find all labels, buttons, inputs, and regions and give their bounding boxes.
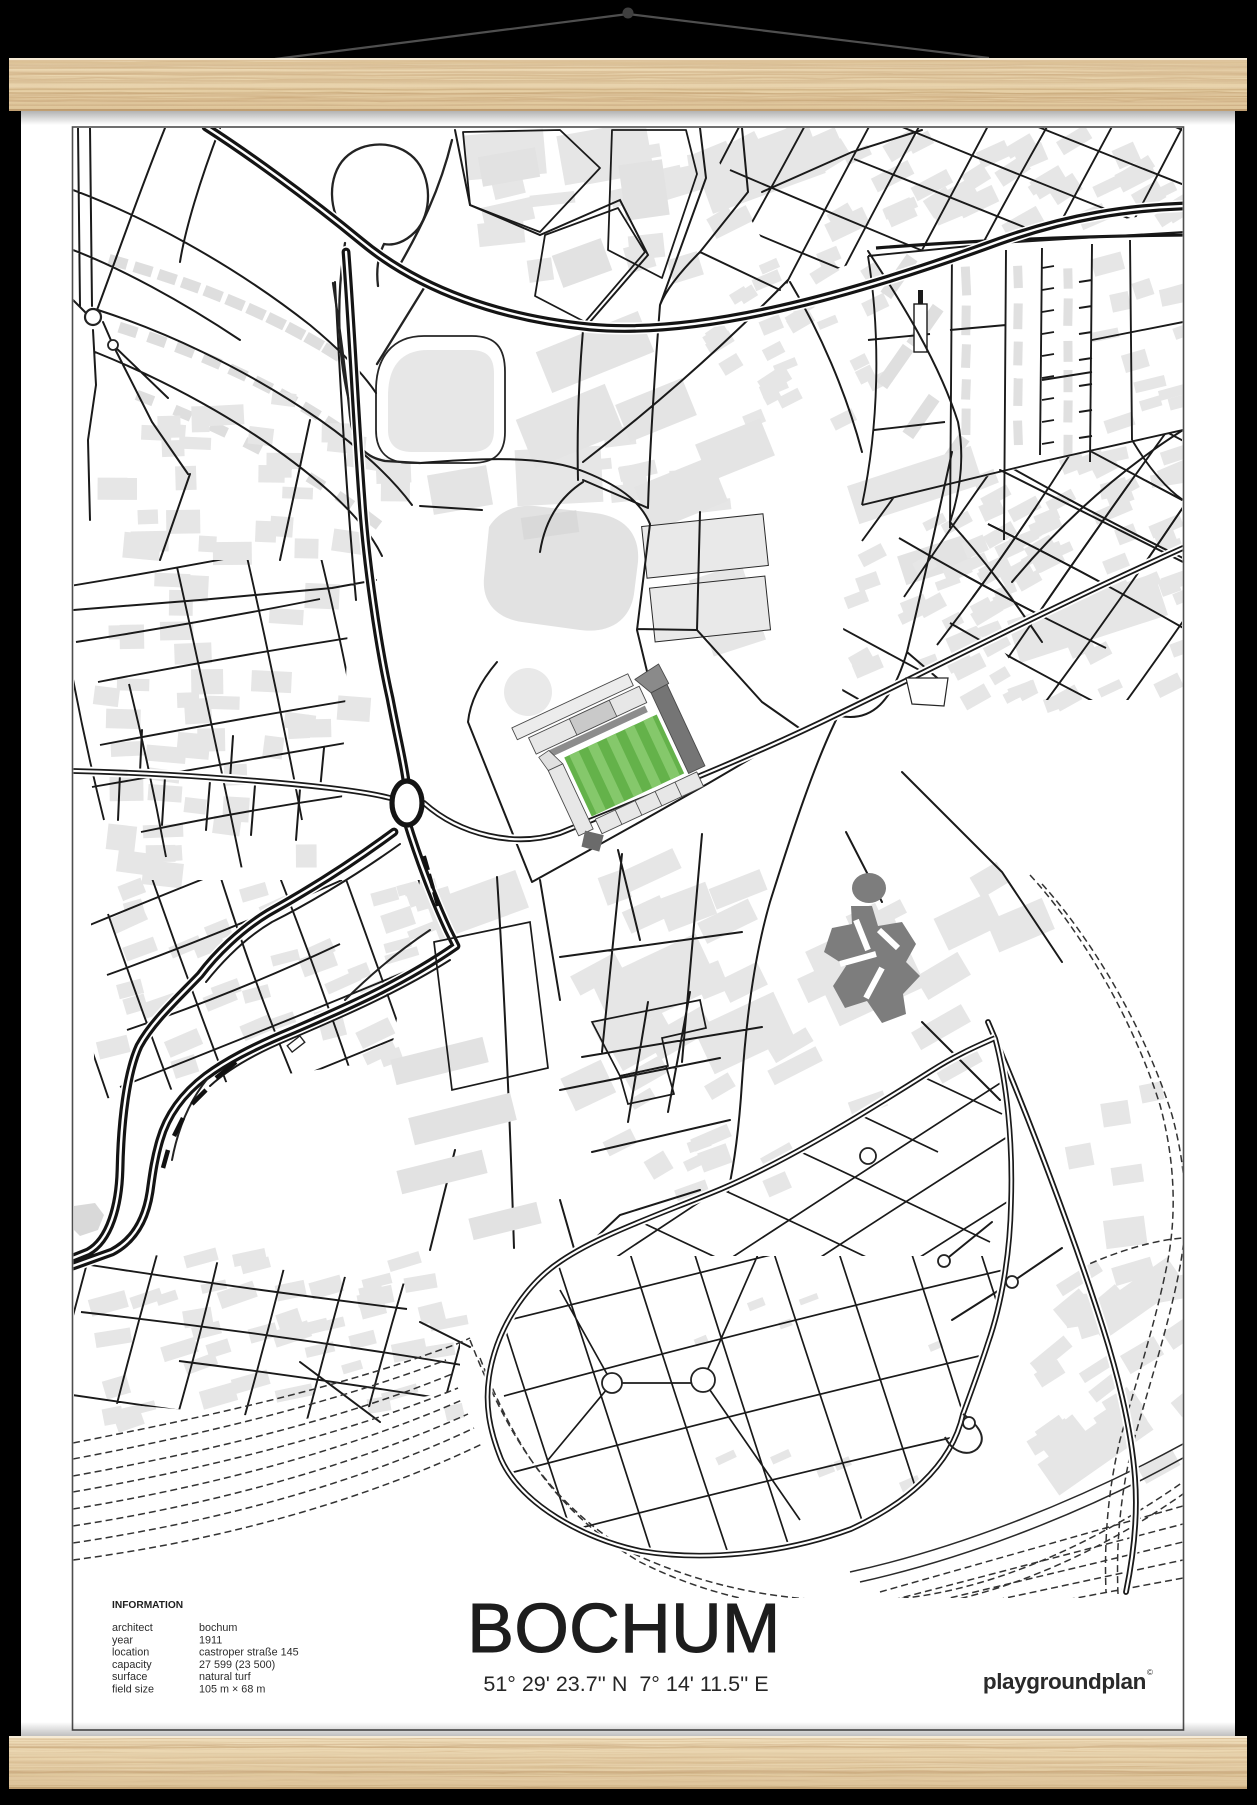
svg-text:architect: architect — [112, 1622, 153, 1634]
svg-text:bochum: bochum — [199, 1622, 237, 1634]
svg-text:playgroundplan: playgroundplan — [983, 1669, 1146, 1694]
svg-text:1911: 1911 — [199, 1634, 222, 1646]
svg-text:capacity: capacity — [112, 1659, 152, 1671]
svg-text:51° 29' 23.7'' N 7° 14' 11.5': 51° 29' 23.7'' N 7° 14' 11.5'' E — [483, 1672, 768, 1696]
svg-text:natural turf: natural turf — [199, 1671, 252, 1683]
svg-text:105 m × 68 m: 105 m × 68 m — [199, 1684, 265, 1696]
svg-text:field size: field size — [112, 1684, 154, 1696]
svg-text:year: year — [112, 1634, 133, 1646]
svg-text:castroper straße 145: castroper straße 145 — [199, 1647, 299, 1659]
svg-text:BOCHUM: BOCHUM — [467, 1589, 781, 1667]
svg-text:surface: surface — [112, 1671, 147, 1683]
svg-text:location: location — [112, 1647, 149, 1659]
svg-text:©: © — [1147, 1668, 1153, 1677]
svg-text:27 599 (23 500): 27 599 (23 500) — [199, 1659, 275, 1671]
svg-text:INFORMATION: INFORMATION — [112, 1600, 183, 1611]
